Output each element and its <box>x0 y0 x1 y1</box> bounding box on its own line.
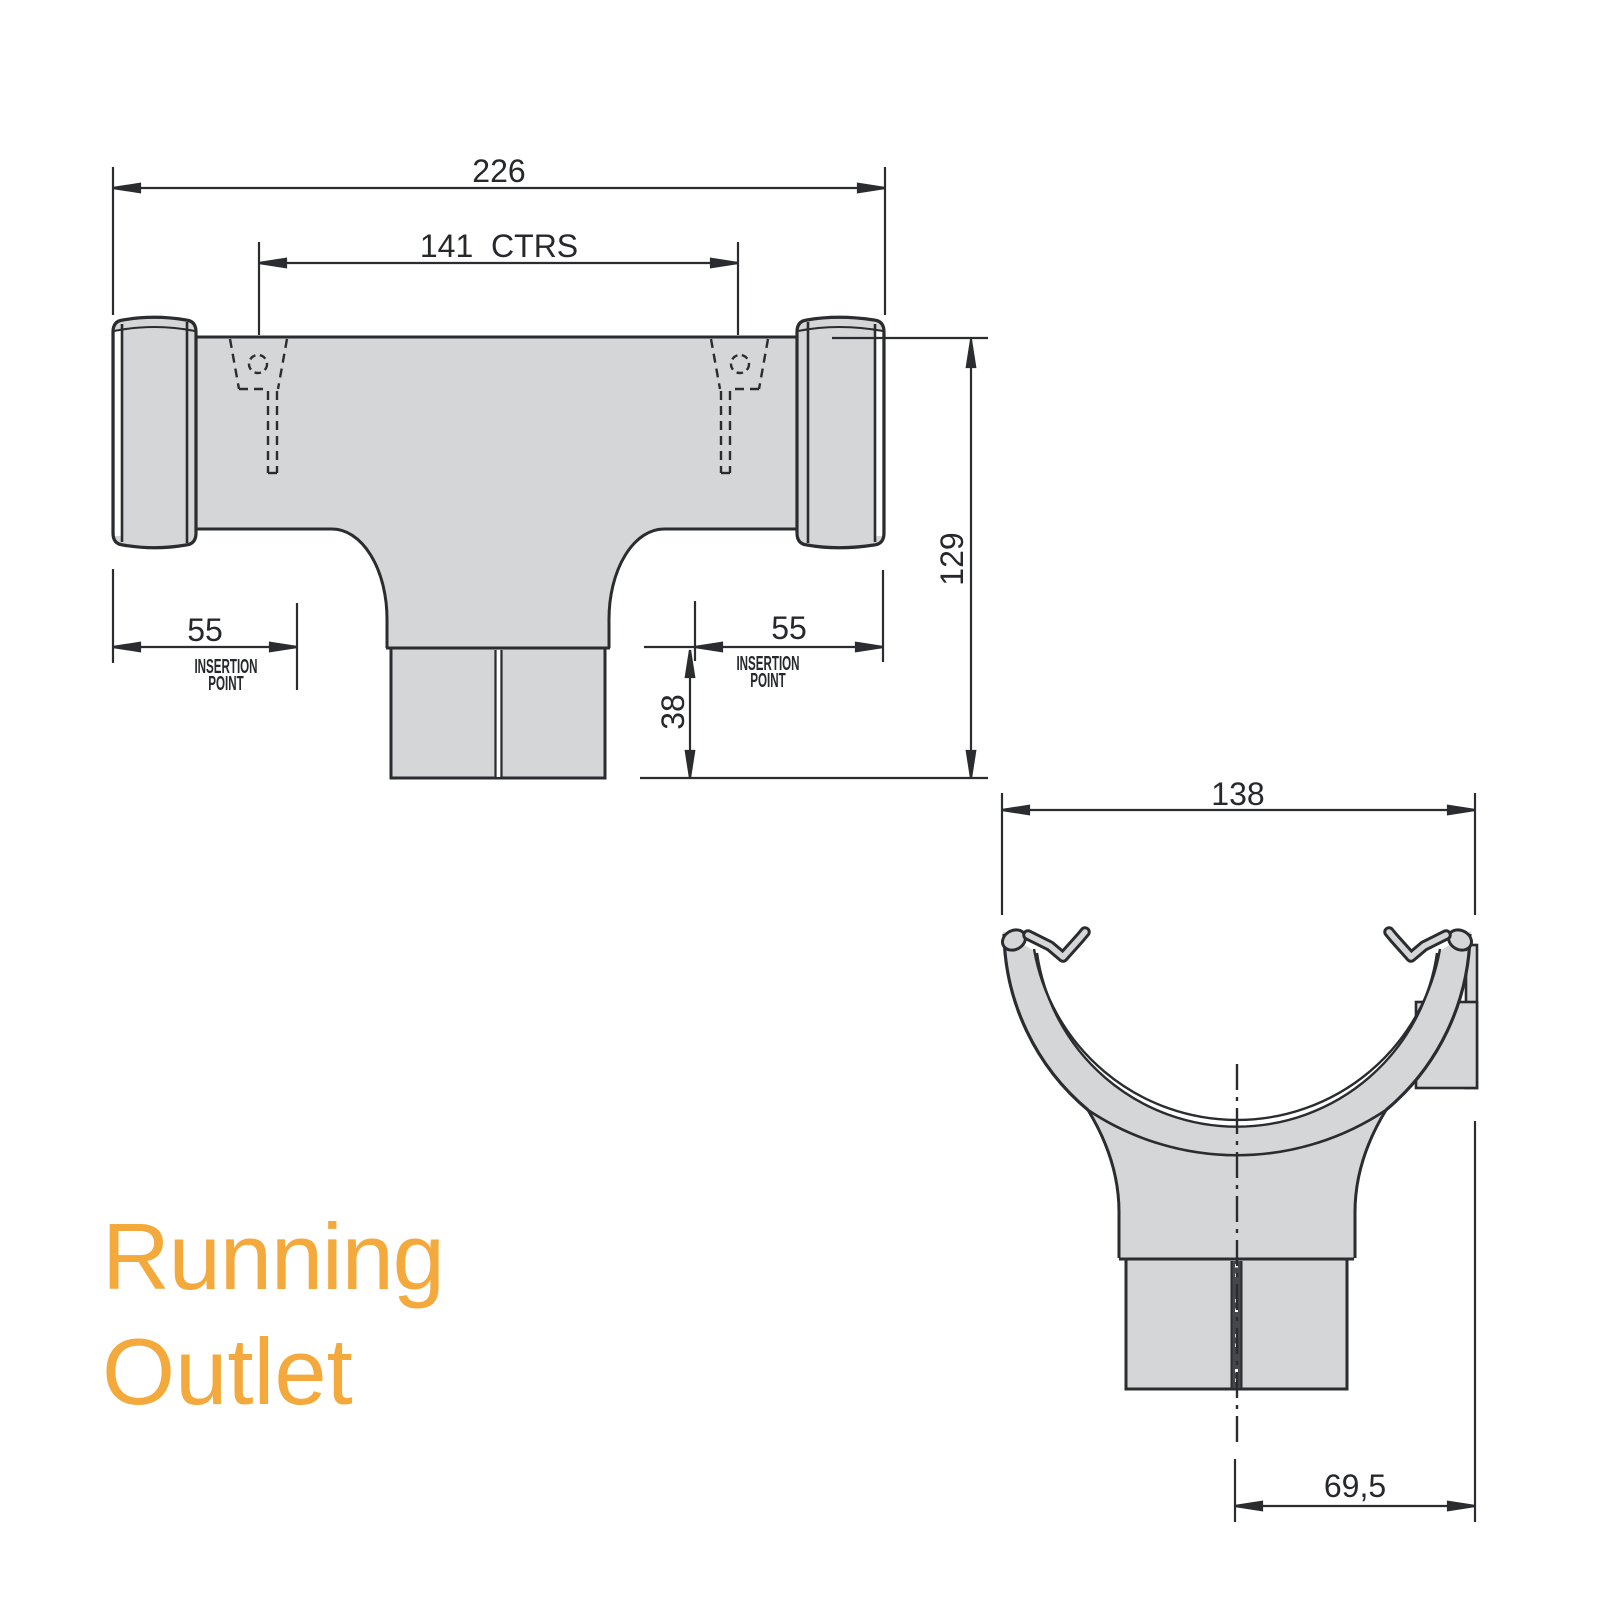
svg-text:129: 129 <box>934 532 970 585</box>
svg-text:38: 38 <box>655 694 691 730</box>
svg-text:141 CTRS: 141 CTRS <box>420 228 578 264</box>
svg-text:Outlet: Outlet <box>102 1319 353 1424</box>
svg-text:POINT: POINT <box>750 670 785 692</box>
svg-text:226: 226 <box>472 153 525 189</box>
svg-text:69,5: 69,5 <box>1324 1468 1386 1504</box>
svg-text:POINT: POINT <box>208 673 243 695</box>
svg-text:138: 138 <box>1211 776 1264 812</box>
svg-text:55: 55 <box>187 612 223 648</box>
svg-text:Running: Running <box>102 1204 444 1309</box>
svg-text:55: 55 <box>771 610 807 646</box>
